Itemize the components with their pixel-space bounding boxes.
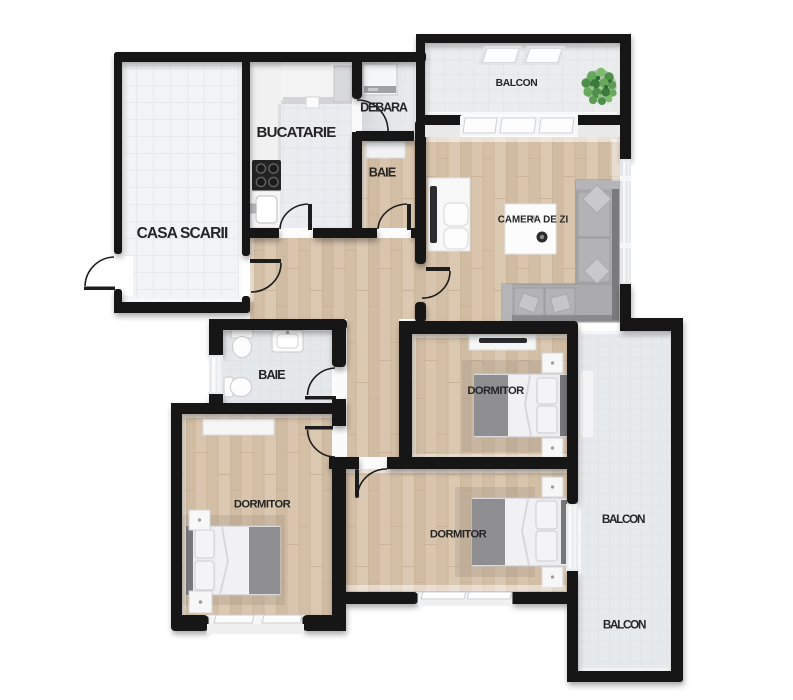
svg-text:CAMERA DE ZI: CAMERA DE ZI [498,215,569,226]
svg-text:BAIE: BAIE [369,166,396,180]
svg-text:CASA SCARII: CASA SCARII [137,225,228,242]
svg-text:DORMITOR: DORMITOR [234,499,291,511]
svg-text:DORMITOR: DORMITOR [467,385,524,397]
svg-text:BUCATARIE: BUCATARIE [257,124,337,141]
svg-text:DORMITOR: DORMITOR [430,529,487,541]
svg-text:BALCON: BALCON [602,513,645,526]
svg-text:BALCON: BALCON [496,78,538,89]
svg-text:DEBARA: DEBARA [360,101,408,115]
svg-text:BAIE: BAIE [258,368,285,382]
svg-text:BALCON: BALCON [603,619,646,632]
